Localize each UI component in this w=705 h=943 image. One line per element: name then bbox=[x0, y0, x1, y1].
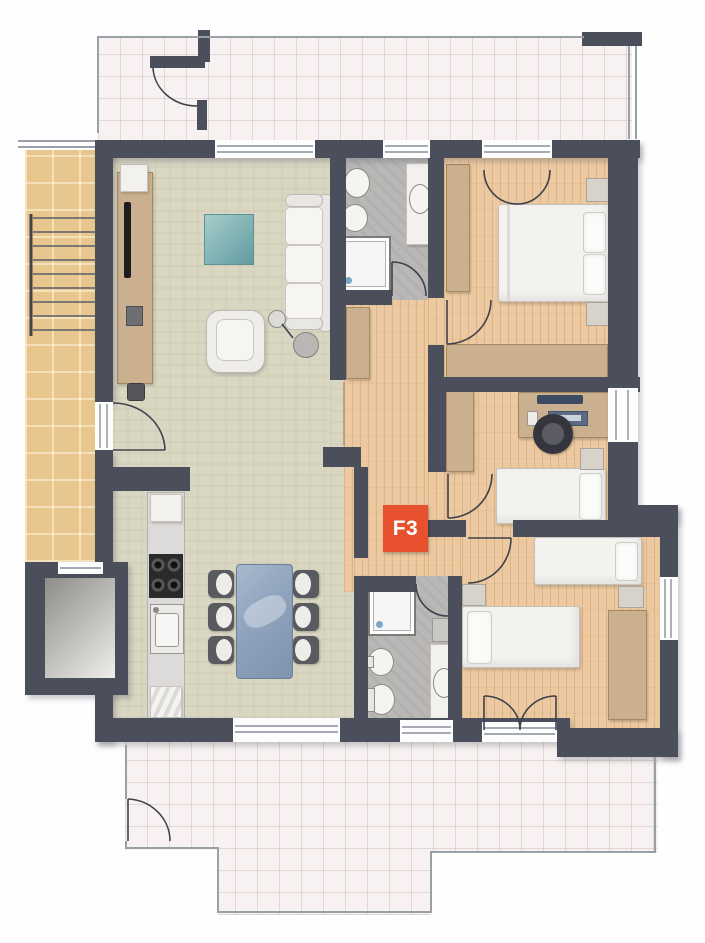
sofa bbox=[285, 194, 333, 330]
wall-bed2-bed3-right bbox=[513, 520, 662, 537]
terrace-top-floor bbox=[98, 36, 632, 143]
floor-lamp-icon bbox=[293, 332, 319, 358]
pillow bbox=[615, 542, 638, 581]
sink-basin bbox=[155, 613, 179, 647]
dining-chair bbox=[293, 570, 319, 598]
window-bath1 bbox=[383, 140, 430, 158]
wall-dining-hall bbox=[354, 467, 368, 558]
doorway-patch-bed2 bbox=[428, 472, 446, 520]
nightstand bbox=[462, 584, 486, 606]
wall-kitchen-stub bbox=[95, 467, 190, 491]
hallway-cabinet bbox=[346, 307, 370, 379]
wall-dining-stub bbox=[323, 447, 361, 467]
wall-hall-bed2-lower bbox=[428, 520, 446, 537]
bedroom3-wardrobe bbox=[608, 610, 647, 720]
single-bed bbox=[534, 537, 642, 585]
monitor-icon bbox=[537, 395, 583, 404]
terrace-cutout-left bbox=[125, 850, 218, 916]
staircase-floor bbox=[25, 150, 98, 562]
window-bath2 bbox=[400, 720, 453, 742]
sofa-cushion bbox=[285, 245, 323, 283]
sofa-cushion bbox=[285, 283, 323, 319]
terrace-entry-wall bbox=[150, 56, 205, 68]
nightstand bbox=[580, 448, 604, 470]
double-bed bbox=[498, 204, 610, 302]
window-bed2 bbox=[608, 388, 638, 442]
terrace-entry-stub-low bbox=[197, 100, 207, 130]
dining-chair bbox=[208, 603, 234, 631]
entry-door-gap bbox=[95, 402, 113, 450]
french-door-bed3 bbox=[482, 722, 557, 742]
wall-left-upper bbox=[95, 140, 113, 402]
wall-bath2-left bbox=[354, 576, 368, 725]
pillow bbox=[579, 473, 602, 520]
doorway-patch-bed1 bbox=[428, 298, 444, 345]
terrace-cutout-right bbox=[431, 853, 659, 916]
coffee-table bbox=[204, 214, 254, 265]
elevator-door bbox=[58, 562, 103, 574]
bedroom1-wardrobe-tall bbox=[446, 164, 470, 292]
floor-plan: F3 bbox=[0, 0, 705, 943]
office-chair bbox=[533, 414, 573, 454]
bedroom2-wardrobe bbox=[446, 390, 474, 472]
dining-chair bbox=[208, 570, 234, 598]
bedroom1-wardrobe-long bbox=[446, 344, 608, 379]
wall-bath1-bottom bbox=[330, 290, 392, 305]
armchair bbox=[206, 310, 265, 373]
blanket-fold bbox=[507, 205, 510, 301]
sofa-arm-top bbox=[285, 194, 323, 207]
nightstand bbox=[618, 586, 644, 608]
terrace-corner-wall bbox=[582, 32, 642, 46]
sink-faucet bbox=[153, 607, 159, 613]
wall-bed3-bottom-left bbox=[462, 722, 482, 742]
dining-table bbox=[236, 564, 293, 679]
boundary-line bbox=[18, 141, 95, 147]
single-bed bbox=[496, 468, 606, 524]
unit-label-badge: F3 bbox=[383, 505, 428, 552]
french-door-bed1 bbox=[482, 140, 552, 158]
wall-bed2-bed3-left bbox=[446, 520, 466, 537]
toilet-icon bbox=[344, 168, 370, 198]
kitchen-appliance bbox=[150, 494, 182, 522]
cooktop-icon bbox=[149, 554, 183, 598]
armchair-cushion bbox=[216, 319, 254, 361]
tv-sideboard bbox=[117, 172, 153, 384]
wall-bath1-bed1-upper bbox=[428, 158, 444, 298]
wall-corner-block bbox=[557, 728, 678, 757]
side-table-round bbox=[268, 310, 286, 328]
table-sheen bbox=[239, 590, 290, 633]
window-bed3 bbox=[660, 577, 678, 640]
wall-right-upper bbox=[608, 140, 638, 505]
pillow bbox=[583, 212, 606, 253]
pillow bbox=[467, 611, 492, 664]
dining-chair bbox=[293, 636, 319, 664]
side-table-top bbox=[120, 164, 148, 192]
kitchen-sink-icon bbox=[150, 604, 184, 654]
wall-hall-bed1-lower bbox=[428, 345, 444, 380]
wall-living-bath1 bbox=[330, 158, 346, 380]
wall-bath2-bed3 bbox=[448, 576, 462, 722]
sofa-cushion bbox=[285, 207, 323, 245]
fridge bbox=[150, 686, 182, 718]
wall-hall-bed2-upper bbox=[428, 392, 446, 472]
elevator-cab bbox=[45, 578, 115, 678]
wall-top bbox=[95, 140, 640, 158]
window-living-bottom bbox=[233, 718, 340, 742]
dining-chair bbox=[208, 636, 234, 664]
pillow bbox=[583, 254, 606, 295]
doorway-patch-hall bbox=[354, 558, 368, 576]
entry-stool bbox=[127, 383, 145, 401]
speaker-icon bbox=[126, 306, 143, 326]
single-bed bbox=[462, 606, 580, 668]
tv-icon bbox=[124, 202, 131, 278]
dining-chair bbox=[293, 603, 319, 631]
window-living-top bbox=[215, 140, 315, 158]
